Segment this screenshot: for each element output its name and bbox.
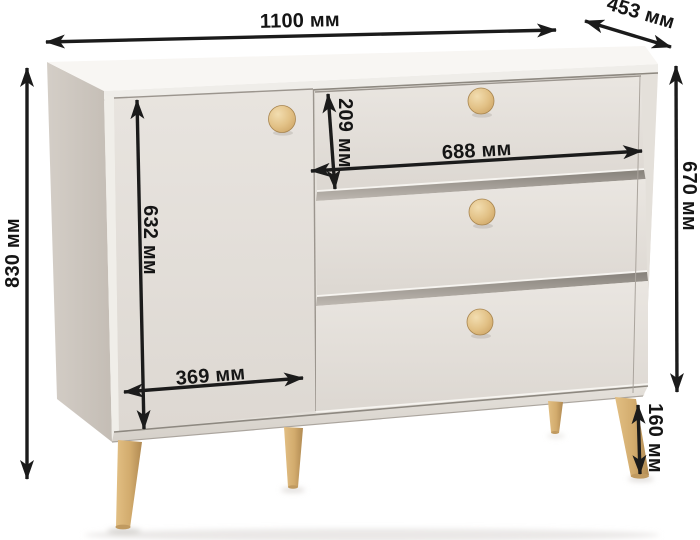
diagram-canvas: 1100 мм 453 мм 830 мм 670 мм 632 мм 209 …: [0, 0, 700, 540]
dimension-width-label: 1100 мм: [260, 9, 340, 33]
drawer-1-knob: [468, 88, 494, 114]
back-right-leg-foot: [551, 431, 559, 434]
furniture-dimension-diagram: 1100 мм 453 мм 830 мм 670 мм 632 мм 209 …: [0, 0, 700, 540]
dimension-door-height-label: 632 мм: [139, 205, 161, 275]
front-left-leg-foot: [116, 525, 131, 530]
door-knob: [269, 106, 296, 133]
dimension-body-height-arrow: [676, 66, 677, 392]
front-right-leg-foot: [631, 473, 649, 478]
mid-left-leg-foot: [288, 485, 298, 489]
dimension-leg-height-label: 160 мм: [644, 403, 666, 473]
dimension-top-drawer-height-label: 209 мм: [334, 98, 356, 168]
dimension-drawer-width-label: 688 мм: [441, 138, 512, 164]
dimension-leg-height-arrow: [638, 405, 640, 474]
left-side-panel: [47, 62, 112, 442]
dimension-total-height-label: 830 мм: [2, 218, 24, 288]
drawer-3-knob: [467, 309, 493, 335]
dimension-body-height-label: 670 мм: [678, 161, 700, 231]
drawer-2-knob: [469, 199, 495, 225]
